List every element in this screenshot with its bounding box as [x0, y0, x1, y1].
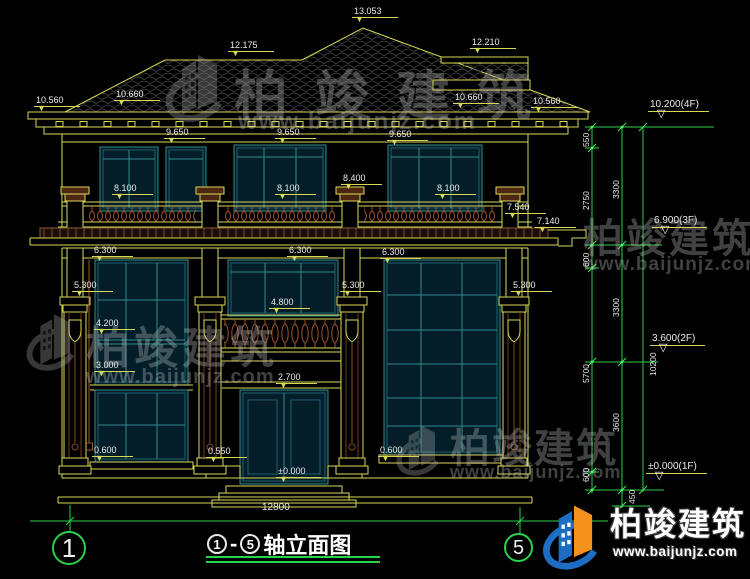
level-marker: 9.650▼ — [387, 129, 428, 141]
level-triangle-icon: ▼ — [278, 136, 287, 145]
brand-logo-icon — [542, 494, 604, 579]
level-triangle-icon: ▼ — [209, 455, 218, 464]
level-marker: 4.200▼ — [94, 318, 135, 330]
level-marker: 3.000▼ — [94, 360, 135, 372]
level-triangle-icon: ▼ — [37, 104, 46, 113]
level-triangle-icon: ▼ — [456, 101, 465, 110]
level-triangle-icon: ▼ — [279, 381, 288, 390]
windows-3f — [100, 145, 482, 211]
level-triangle-icon: ▼ — [473, 46, 482, 55]
level-marker: 10.660▼ — [453, 92, 499, 104]
level-triangle-icon: ▼ — [115, 192, 124, 201]
level-triangle-icon: ▼ — [75, 289, 84, 298]
level-triangle-icon: ▼ — [514, 289, 523, 298]
brand-name: 柏竣建筑 — [610, 499, 746, 545]
chain-dim: 10200 — [648, 352, 659, 376]
level-marker: 12.210▼ — [470, 37, 516, 49]
right-dimension-chains — [585, 123, 714, 510]
level-marker: 6.300▼ — [380, 247, 421, 259]
level-triangle-icon: ▼ — [438, 192, 447, 201]
chain-dim: 3600 — [611, 413, 622, 432]
level-triangle-icon: ▼ — [538, 225, 547, 234]
level-triangle-icon: ▼ — [381, 454, 390, 463]
level-triangle-icon: ▼ — [383, 256, 392, 265]
axis-start-circle: 1 — [207, 534, 227, 554]
level-marker: 5.300▼ — [72, 280, 113, 292]
level-triangle-icon: ▼ — [534, 105, 543, 114]
level-triangle-icon: ▼ — [167, 136, 176, 145]
level-triangle-icon: ▼ — [344, 182, 353, 191]
chain-dim: 5700 — [581, 364, 592, 383]
level-marker: 7.540▼ — [505, 202, 546, 214]
level-marker: 8.100▼ — [275, 183, 316, 195]
chain-dim: 550 — [581, 133, 592, 147]
level-marker: 6.300▼ — [92, 245, 133, 257]
level-marker: 5.300▼ — [511, 280, 552, 292]
level-triangle-icon: ▼ — [231, 49, 240, 58]
floor-level-marker: 3.600(2F)▽ — [650, 333, 705, 346]
level-triangle-icon: ▼ — [508, 211, 517, 220]
level-triangle-icon: ▼ — [355, 15, 364, 24]
level-triangle-icon: ▼ — [97, 369, 106, 378]
entrance-door — [206, 382, 362, 507]
chain-dim: 3300 — [611, 180, 622, 199]
level-marker: 10.560▼ — [531, 96, 577, 108]
chain-dim: 600 — [581, 253, 592, 267]
level-marker: 8.100▼ — [435, 183, 476, 195]
level-triangle-open-icon: ▽ — [661, 225, 669, 236]
level-marker: ±0.000▼ — [276, 466, 321, 478]
level-triangle-icon: ▼ — [272, 306, 281, 315]
axis-bubble-1: 1 — [52, 531, 86, 565]
level-marker: 8.400▼ — [341, 173, 382, 185]
floor-level-marker: 10.200(4F)▽ — [648, 99, 709, 112]
level-triangle-icon: ▼ — [278, 192, 287, 201]
level-triangle-icon: ▼ — [95, 254, 104, 263]
brand-url: www.baijunjz.com — [613, 544, 738, 559]
chain-dim: 2750 — [581, 191, 592, 210]
level-triangle-icon: ▼ — [95, 454, 104, 463]
level-triangle-icon: ▼ — [97, 327, 106, 336]
chain-dim: 600 — [581, 468, 592, 482]
level-marker: 4.800▼ — [269, 297, 310, 309]
level-triangle-icon: ▼ — [390, 138, 399, 147]
title-underline — [206, 556, 380, 558]
axis-end-circle: 5 — [240, 534, 260, 554]
level-triangle-open-icon: ▽ — [657, 109, 665, 120]
level-marker: 9.650▼ — [164, 127, 205, 139]
level-marker: 10.560▼ — [34, 95, 80, 107]
level-marker: 8.100▼ — [112, 183, 153, 195]
level-marker: 10.660▼ — [114, 89, 160, 101]
title-underline — [206, 561, 380, 563]
level-marker: 2.700▼ — [276, 372, 317, 384]
level-triangle-open-icon: ▽ — [659, 343, 667, 354]
level-marker: 9.650▼ — [275, 127, 316, 139]
level-marker: 0.550▼ — [206, 446, 247, 458]
level-marker: 12.175▼ — [228, 40, 274, 52]
cad-elevation-drawing: 柏竣建筑 www.baijunjz.com 柏竣建筑 www.baijunjz.… — [0, 0, 750, 579]
level-marker: 5.300▼ — [340, 280, 381, 292]
axis-bubble-5: 5 — [504, 533, 533, 562]
level-triangle-icon: ▼ — [290, 254, 299, 263]
level-marker: 7.140▼ — [535, 216, 576, 228]
title-separator: - — [230, 531, 237, 557]
floor-level-marker: ±0.000(1F)▽ — [646, 461, 707, 474]
level-marker: 0.600▼ — [378, 445, 419, 457]
window-right-wing — [379, 260, 505, 463]
overall-width-dim: 12800 — [262, 502, 290, 513]
level-triangle-icon: ▼ — [117, 98, 126, 107]
level-triangle-open-icon: ▽ — [655, 471, 663, 482]
level-triangle-icon: ▼ — [279, 475, 288, 484]
floor-level-marker: 6.900(3F)▽ — [652, 215, 707, 228]
chain-dim: 3300 — [611, 298, 622, 317]
level-triangle-icon: ▼ — [343, 289, 352, 298]
level-marker: 0.600▼ — [92, 445, 133, 457]
level-marker: 13.053▼ — [352, 6, 398, 18]
center-window-balcony — [214, 260, 352, 361]
level-marker: 6.300▼ — [287, 245, 328, 257]
